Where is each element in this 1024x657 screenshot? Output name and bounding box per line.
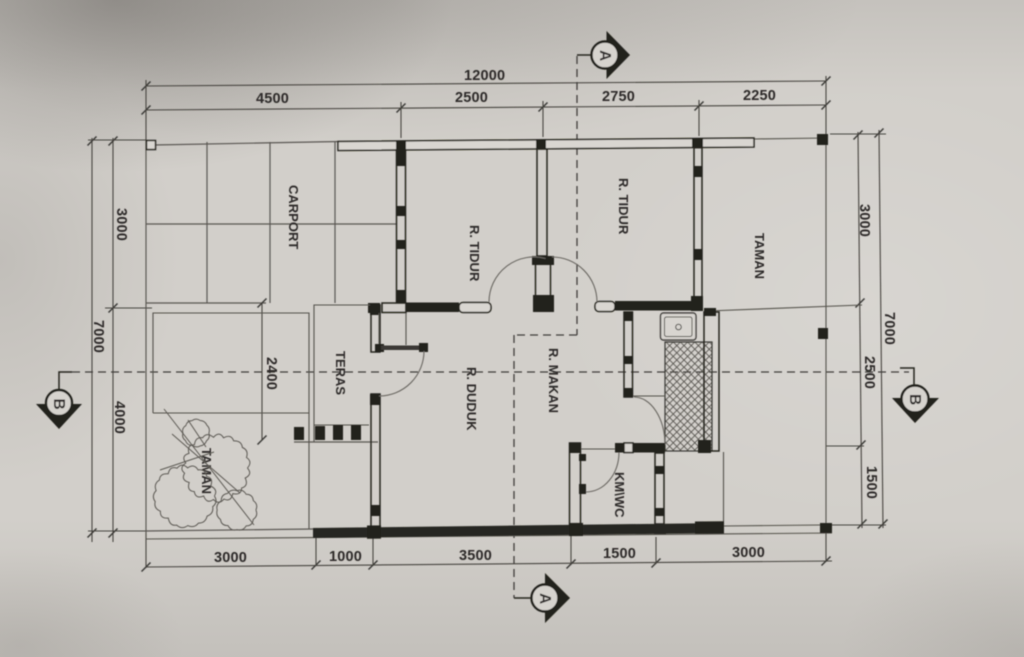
svg-text:2400: 2400 <box>263 357 279 390</box>
svg-text:CARPORT: CARPORT <box>286 185 301 249</box>
svg-text:TAMAN: TAMAN <box>752 233 767 279</box>
svg-text:7000: 7000 <box>881 312 897 345</box>
svg-text:7000: 7000 <box>90 320 106 353</box>
svg-text:R. DUDUK: R. DUDUK <box>464 367 479 431</box>
svg-text:R. TIDUR: R. TIDUR <box>467 225 482 282</box>
svg-text:2250: 2250 <box>743 88 776 104</box>
svg-text:R. MAKAN: R. MAKAN <box>546 348 561 413</box>
svg-text:3000: 3000 <box>113 208 129 241</box>
svg-text:4500: 4500 <box>256 91 289 107</box>
svg-text:R. TIDUR: R. TIDUR <box>616 178 631 235</box>
svg-text:1000: 1000 <box>329 549 362 565</box>
svg-text:B: B <box>906 394 923 405</box>
svg-text:B: B <box>50 399 67 410</box>
svg-text:3000: 3000 <box>732 545 765 561</box>
svg-text:2500: 2500 <box>455 90 488 106</box>
svg-text:1500: 1500 <box>863 466 879 499</box>
svg-text:TERAS: TERAS <box>333 351 348 395</box>
svg-text:A: A <box>596 50 613 61</box>
svg-text:3000: 3000 <box>214 550 247 566</box>
svg-text:A: A <box>536 593 553 604</box>
svg-text:3000: 3000 <box>856 204 872 237</box>
svg-text:KM\WC: KM\WC <box>612 472 627 518</box>
svg-text:12000: 12000 <box>464 68 505 84</box>
svg-text:3500: 3500 <box>459 548 492 564</box>
svg-text:2750: 2750 <box>602 89 635 105</box>
svg-text:4000: 4000 <box>111 401 127 434</box>
svg-text:1500: 1500 <box>603 546 636 562</box>
